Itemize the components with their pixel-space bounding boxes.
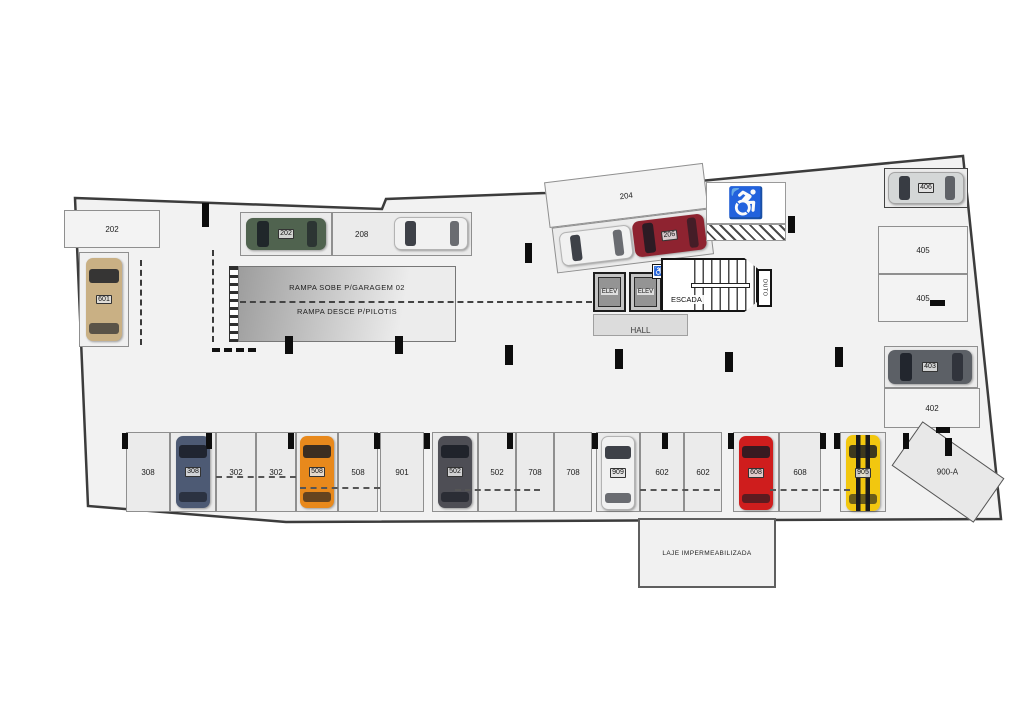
column-marker bbox=[788, 216, 795, 233]
spot-label: 900-A bbox=[937, 467, 958, 476]
spot-label: 602 bbox=[655, 468, 668, 477]
car-608: 608 bbox=[739, 436, 773, 510]
car-label: 308 bbox=[185, 467, 201, 477]
column-marker bbox=[505, 345, 513, 365]
dashed-guide bbox=[300, 487, 380, 489]
car-label: 206 bbox=[661, 230, 678, 242]
car-403: 403 bbox=[888, 350, 972, 384]
column-marker bbox=[945, 438, 952, 456]
parking-spot-302a: 302 bbox=[216, 432, 256, 512]
spot-label: 708 bbox=[566, 468, 579, 477]
spot-label: 608 bbox=[793, 468, 806, 477]
stairs-label: ESCADA bbox=[669, 295, 704, 304]
elevator-cab: ELEV bbox=[598, 277, 621, 307]
spot-label: 602 bbox=[696, 468, 709, 477]
slab-note-box: LAJE IMPERMEABILIZADA bbox=[638, 518, 776, 588]
spot-label: 208 bbox=[355, 230, 368, 239]
dashed-guide bbox=[212, 348, 256, 352]
parking-spot-405a: 405 bbox=[878, 226, 968, 274]
column-marker bbox=[820, 433, 826, 449]
column-marker bbox=[728, 433, 734, 449]
wheelchair-icon: ♿ bbox=[727, 186, 764, 221]
drive-aisle-centerline bbox=[240, 301, 592, 303]
car-508: 508 bbox=[300, 436, 334, 508]
car-202: 202 bbox=[246, 218, 326, 250]
column-marker bbox=[395, 336, 403, 354]
column-marker bbox=[662, 433, 668, 449]
parking-spot-602b: 602 bbox=[684, 432, 722, 512]
spot-label: 308 bbox=[141, 468, 154, 477]
dashed-guide bbox=[216, 476, 296, 478]
car-label: 508 bbox=[309, 467, 325, 477]
column-marker bbox=[285, 336, 293, 354]
hatched-no-parking-zone bbox=[706, 224, 786, 241]
column-marker bbox=[936, 427, 950, 433]
spot-label: 204 bbox=[619, 190, 633, 201]
column-marker bbox=[374, 433, 380, 449]
parking-spot-405b: 405 bbox=[878, 274, 968, 322]
car-502: 502 bbox=[438, 436, 472, 508]
spot-label: 708 bbox=[528, 468, 541, 477]
duct-shaft: DUTO bbox=[757, 269, 772, 307]
column-marker bbox=[507, 433, 513, 449]
car-label: 406 bbox=[918, 183, 934, 193]
car-905: 905 bbox=[846, 435, 880, 511]
car-label: 502 bbox=[447, 467, 463, 477]
hall-label: HALL bbox=[630, 326, 650, 335]
dashed-guide bbox=[212, 250, 214, 342]
duct-label: DUTO bbox=[762, 279, 768, 296]
car-label: 905 bbox=[855, 468, 871, 478]
parking-spot-708b: 708 bbox=[554, 432, 592, 512]
parking-spot-708a: 708 bbox=[516, 432, 554, 512]
spot-label: 405 bbox=[916, 246, 929, 255]
elevator-label: ELEV bbox=[601, 289, 618, 295]
ramp: RAMPA SOBE P/GARAGEM 02 RAMPA DESCE P/PI… bbox=[238, 266, 456, 342]
parking-spot-901: 901 bbox=[380, 432, 424, 512]
car-208 bbox=[394, 217, 468, 250]
dashed-guide bbox=[770, 489, 850, 491]
elevator-cab: ELEV bbox=[634, 277, 657, 307]
car-label: 601 bbox=[96, 295, 112, 305]
spot-label: 901 bbox=[395, 468, 408, 477]
column-marker bbox=[725, 352, 733, 372]
elevator-left: ELEV bbox=[593, 272, 626, 312]
column-marker bbox=[424, 433, 430, 449]
car-label: 909 bbox=[610, 468, 626, 478]
column-marker bbox=[835, 347, 843, 367]
column-marker bbox=[834, 433, 840, 449]
car-308: 308 bbox=[176, 436, 210, 508]
slab-note-label: LAJE IMPERMEABILIZADA bbox=[662, 550, 751, 557]
column-marker bbox=[903, 433, 909, 449]
stairwell: ESCADA bbox=[661, 258, 758, 312]
ramp-down-label: RAMPA DESCE P/PILOTIS bbox=[239, 307, 455, 316]
garage-floor-plan: 202 601 202 208 204 206 ♿ RAMPA SOBE P/G… bbox=[0, 0, 1024, 724]
car-909: 909 bbox=[601, 436, 635, 510]
dashed-guide bbox=[455, 489, 540, 491]
column-marker bbox=[288, 433, 294, 449]
car-label: 202 bbox=[278, 229, 294, 239]
spot-label: 202 bbox=[105, 225, 118, 234]
accessible-parking-zone: ♿ bbox=[706, 182, 786, 224]
column-marker bbox=[525, 243, 532, 263]
car-406: 406 bbox=[888, 172, 964, 204]
elevator-label: ELEV bbox=[637, 289, 654, 295]
column-marker bbox=[930, 300, 945, 306]
parking-spot-608b: 608 bbox=[779, 432, 821, 512]
car-label: 403 bbox=[922, 362, 938, 372]
spot-label: 402 bbox=[925, 404, 938, 413]
column-marker bbox=[615, 349, 623, 369]
spot-label: 502 bbox=[490, 468, 503, 477]
parking-spot-402: 402 bbox=[884, 388, 980, 428]
dashed-guide bbox=[140, 260, 142, 345]
parking-spot-508b: 508 bbox=[338, 432, 378, 512]
car-601: 601 bbox=[86, 258, 122, 341]
column-marker bbox=[122, 433, 128, 449]
stair-rail bbox=[691, 283, 751, 288]
parking-spot-308a: 308 bbox=[126, 432, 170, 512]
spot-label: 405 bbox=[916, 294, 929, 303]
hall: HALL bbox=[593, 314, 688, 336]
column-marker bbox=[592, 433, 598, 449]
spot-label: 508 bbox=[351, 468, 364, 477]
column-marker bbox=[202, 203, 209, 227]
car-label: 608 bbox=[748, 468, 764, 478]
ramp-up-label: RAMPA SOBE P/GARAGEM 02 bbox=[239, 283, 455, 292]
dashed-guide bbox=[640, 489, 720, 491]
parking-spot-202: 202 bbox=[64, 210, 160, 248]
